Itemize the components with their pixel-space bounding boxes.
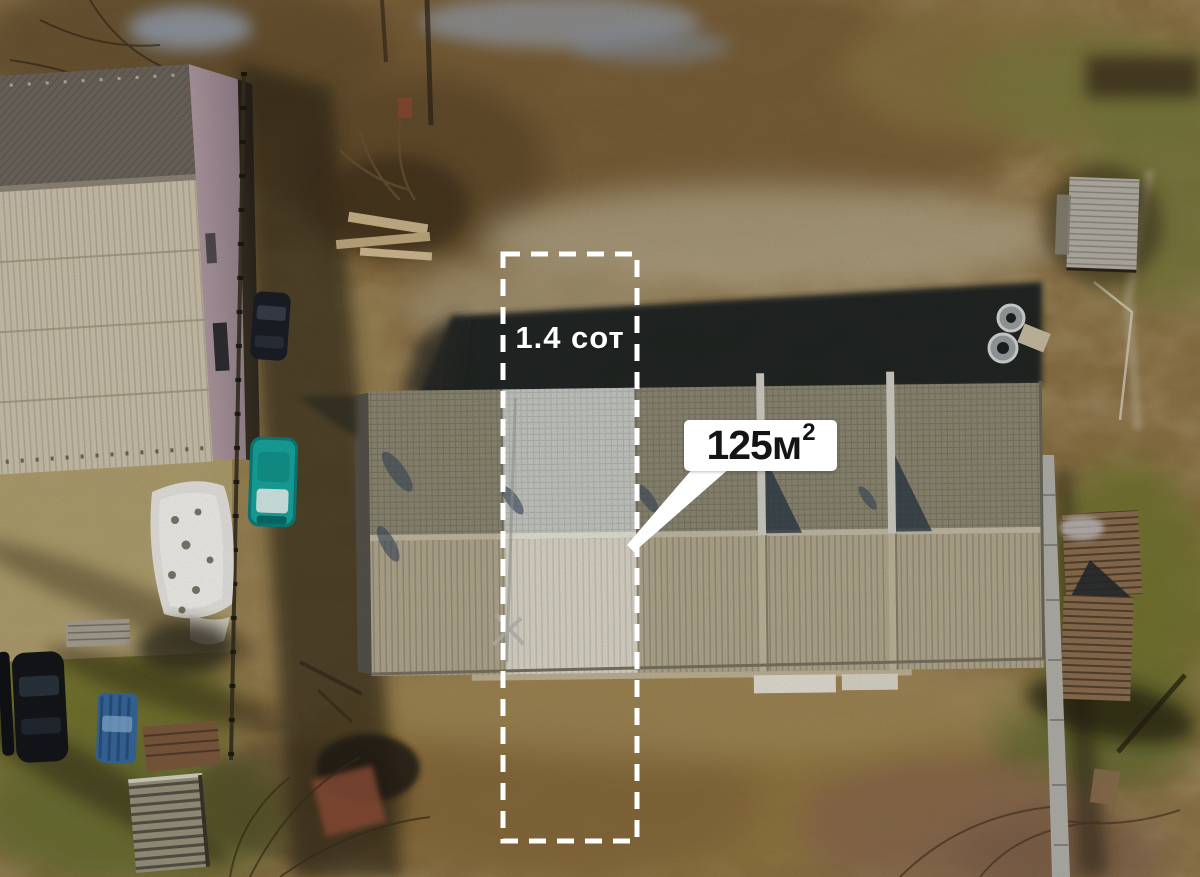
scene-graphics: [0, 0, 1200, 877]
aerial-photo: 1.4 сот 125м2: [0, 0, 1200, 877]
area-callout: 125м2: [684, 420, 837, 471]
area-value: 125м: [706, 425, 801, 466]
plot-size-label: 1.4 сот: [503, 320, 637, 356]
photo-grain: [0, 0, 1200, 877]
area-superscript: 2: [802, 421, 815, 445]
